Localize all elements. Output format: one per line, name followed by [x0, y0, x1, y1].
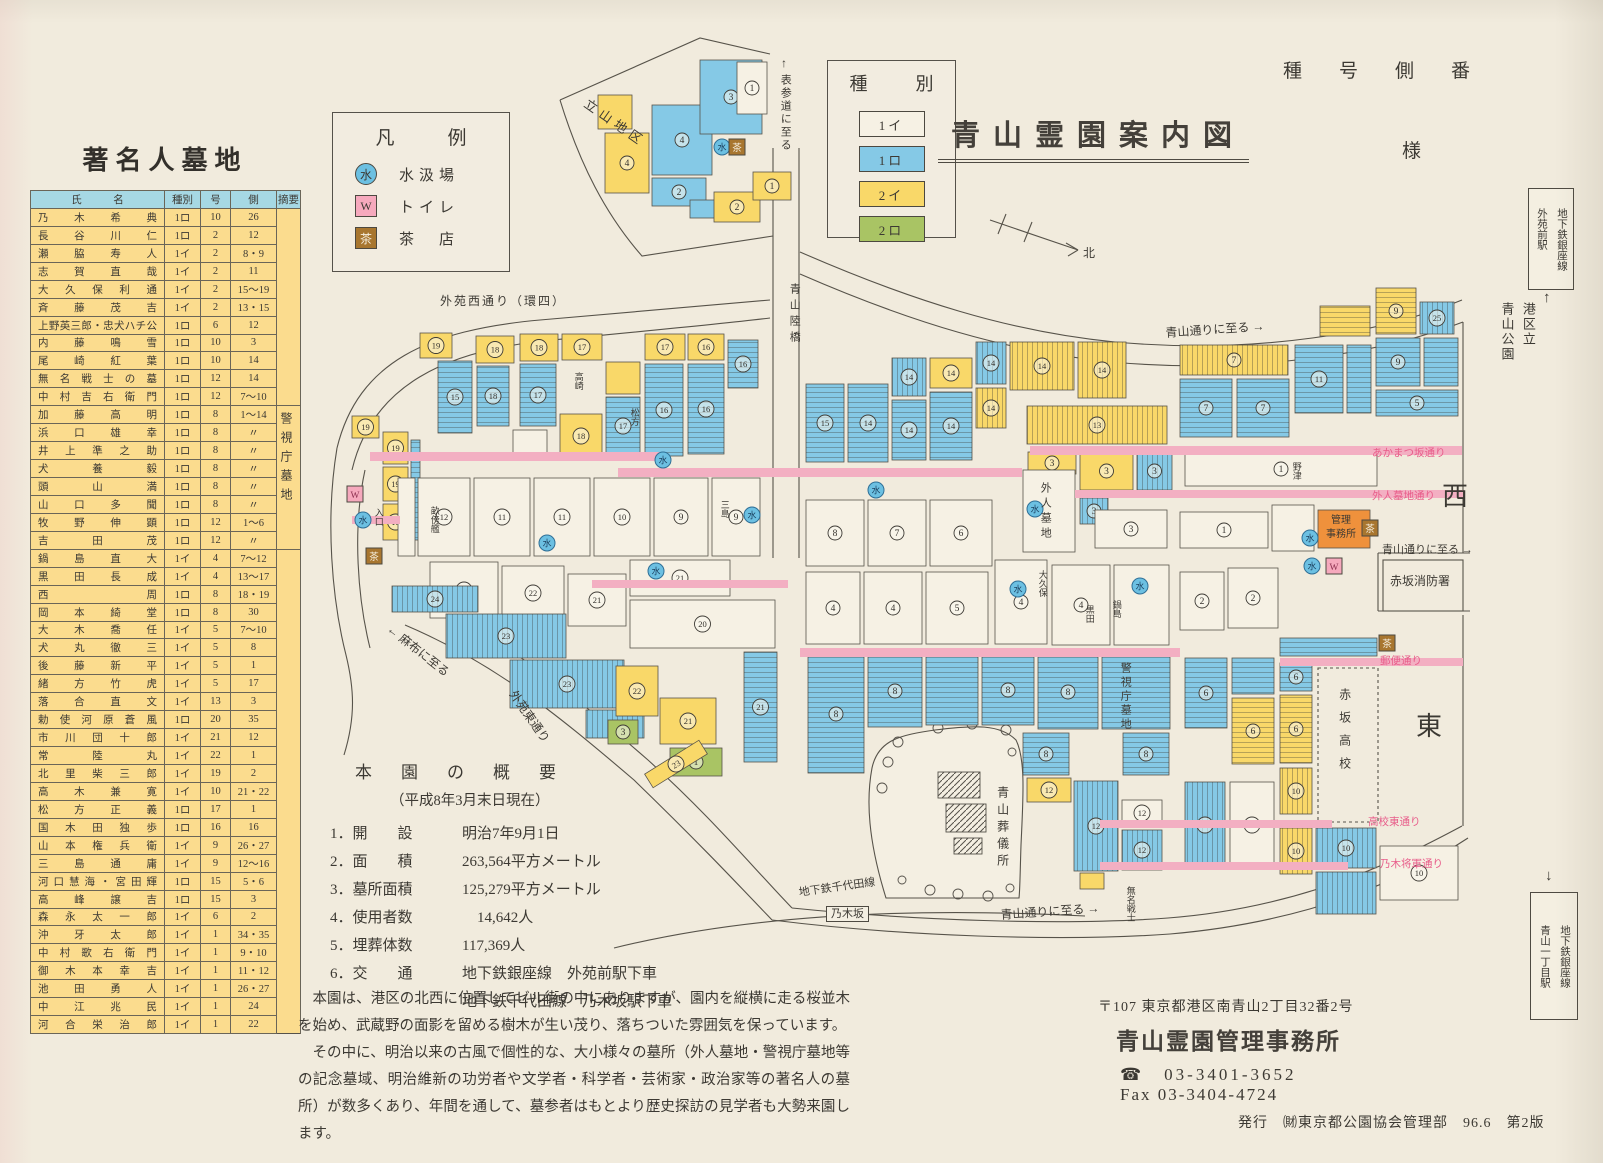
block-number: 4 — [625, 159, 630, 169]
block-number: 10 — [1415, 868, 1424, 878]
block-number: 12 — [1138, 845, 1147, 855]
map-block: 20 — [630, 600, 775, 648]
map-block: 25 — [1420, 302, 1454, 334]
block-number: 10 — [618, 512, 627, 522]
block-number: 1 — [750, 84, 755, 94]
block-number: 6 — [959, 529, 964, 539]
block-number: 9 — [734, 513, 739, 523]
block-number: 19 — [432, 341, 441, 351]
svg-text:水: 水 — [747, 510, 756, 521]
map-block: 14 — [976, 342, 1006, 384]
teahouse-icon: 茶 — [1362, 520, 1378, 536]
map-block: 19 — [352, 416, 379, 438]
block-number: 8 — [1044, 750, 1049, 760]
map-block: 1 — [737, 62, 767, 114]
block-number: 19 — [361, 422, 370, 432]
toilet-icon: W — [347, 486, 363, 502]
block-number: 5 — [955, 604, 960, 614]
water-station-icon: 水 — [1302, 530, 1318, 546]
pink-path — [1100, 820, 1332, 828]
block-number: 3 — [1129, 525, 1134, 535]
map-block — [1424, 338, 1458, 386]
block-number: 19 — [391, 443, 400, 453]
map-block: 6 — [1185, 658, 1227, 728]
pink-path — [370, 452, 663, 461]
map-block: 4 — [1052, 565, 1110, 645]
map-block: 14 — [930, 358, 972, 388]
map-block: 22 — [502, 566, 564, 620]
map-block: 17 — [606, 397, 640, 455]
map-block: 18 — [560, 414, 602, 458]
map-block: 5 — [926, 572, 988, 644]
svg-text:水: 水 — [1307, 561, 1316, 572]
block-number: 18 — [489, 391, 498, 401]
svg-text:水: 水 — [658, 455, 667, 466]
block-number: 14 — [1038, 361, 1047, 371]
block-number: 3 — [729, 93, 734, 103]
block-number: 8 — [833, 529, 838, 539]
map-block: 17 — [562, 334, 602, 360]
water-station-icon: 水 — [1304, 558, 1320, 574]
block-number: 3 — [1050, 459, 1055, 469]
block-number: 3 — [621, 728, 626, 738]
water-station-icon: 水 — [355, 512, 371, 528]
block-number: 17 — [661, 342, 670, 352]
block-number: 22 — [633, 686, 642, 696]
block-number: 16 — [660, 405, 669, 415]
map-block: 3 — [608, 720, 638, 744]
block-number: 1 — [770, 182, 775, 192]
block-number: 18 — [491, 345, 500, 355]
map-block: 7 — [868, 500, 926, 566]
block-number: 16 — [702, 342, 711, 352]
map-block: 24 — [392, 586, 478, 612]
svg-text:水: 水 — [1135, 581, 1144, 592]
block-number: 14 — [947, 421, 956, 431]
block-number: 4 — [680, 136, 685, 146]
map-block: 3 — [1080, 452, 1133, 490]
map-block — [1316, 872, 1376, 914]
map-block: 6 — [1280, 663, 1312, 691]
svg-text:水: 水 — [358, 515, 367, 526]
map-block: 16 — [688, 334, 724, 360]
water-station-icon: 水 — [539, 535, 555, 551]
map-block — [1320, 306, 1370, 336]
map-block: 8 — [806, 500, 864, 566]
funeral-hall-area — [869, 719, 1023, 901]
block-number: 15 — [451, 392, 460, 402]
map-block: 18 — [477, 366, 509, 426]
water-station-icon: 水 — [655, 452, 671, 468]
map-block: 10 — [1380, 846, 1458, 900]
map-block: 2 — [1228, 568, 1278, 628]
block-number: 6 — [1294, 725, 1299, 735]
map-block: 14 — [1078, 342, 1126, 398]
map-block: 4 — [806, 572, 860, 644]
block-number: 6 — [1251, 727, 1256, 737]
scanned-cemetery-map-page: 4432211191919191915181818171817171716161… — [0, 0, 1603, 1163]
water-station-icon: 水 — [1132, 578, 1148, 594]
map-block: 17 — [645, 334, 685, 360]
svg-text:水: 水 — [1013, 584, 1022, 595]
map-block: 10 — [594, 478, 650, 556]
map-block: 16 — [688, 364, 724, 454]
map-block — [1280, 638, 1377, 656]
svg-text:茶: 茶 — [732, 142, 742, 154]
block-number: 1 — [1279, 465, 1284, 475]
svg-text:茶: 茶 — [1382, 638, 1392, 650]
map-block: 6 — [930, 500, 992, 566]
map-block — [1102, 655, 1170, 729]
map-block: 3 — [1137, 452, 1172, 490]
map-block — [398, 478, 415, 556]
map-block: 1 — [1180, 512, 1268, 548]
map-block: 4 — [995, 560, 1047, 644]
block-number: 12 — [1045, 785, 1054, 795]
water-station-icon: 水 — [1010, 581, 1026, 597]
map-block: 16 — [645, 364, 683, 456]
teahouse-icon: 茶 — [1379, 635, 1395, 651]
map-block: 9 — [1376, 288, 1416, 334]
block-number: 9 — [1396, 358, 1401, 368]
block-number: 20 — [698, 619, 707, 629]
block-number: 12 — [1138, 808, 1147, 818]
map-block: 14 — [930, 392, 972, 460]
svg-text:水: 水 — [717, 142, 726, 153]
map-block: 2 — [1180, 572, 1224, 630]
block-number: 8 — [1006, 686, 1011, 696]
map-block: 15 — [806, 384, 844, 462]
map-block: 5 — [1376, 390, 1458, 416]
map-block: 22 — [616, 666, 658, 716]
map-block: 11 — [1295, 345, 1343, 413]
svg-text:W: W — [1330, 563, 1339, 573]
block-number: 18 — [577, 431, 586, 441]
map-block — [598, 95, 632, 129]
map-block: 18 — [476, 336, 514, 363]
toilet-icon: W — [1326, 558, 1342, 574]
svg-text:水: 水 — [542, 538, 551, 549]
block-number: 14 — [864, 418, 873, 428]
block-number: 9 — [679, 513, 684, 523]
pink-path — [1100, 862, 1348, 870]
block-number: 4 — [1079, 601, 1084, 611]
map-block: 21 — [630, 560, 730, 596]
block-number: 12 — [1092, 821, 1101, 831]
block-number: 8 — [834, 710, 839, 720]
map-block — [606, 362, 640, 394]
map-block: 14 — [892, 400, 926, 460]
map-block: 8 — [1023, 733, 1069, 775]
block-number: 4 — [831, 604, 836, 614]
water-station-icon: 水 — [1027, 501, 1043, 517]
svg-text:水: 水 — [871, 485, 880, 496]
block-number: 1 — [1222, 526, 1227, 536]
block-number: 16 — [739, 359, 748, 369]
block-number: 11 — [1315, 374, 1323, 384]
block-number: 14 — [947, 368, 956, 378]
block-number: 7 — [1204, 404, 1209, 414]
map-block: 7 — [1180, 379, 1232, 437]
map-block: 8 — [982, 655, 1034, 725]
block-number: 7 — [1261, 404, 1266, 414]
block-number: 12 — [440, 512, 449, 522]
block-number: 21 — [756, 702, 765, 712]
block-number: 24 — [431, 594, 440, 604]
svg-text:W: W — [351, 491, 360, 501]
block-number: 4 — [1019, 598, 1024, 608]
pink-path — [1280, 658, 1463, 666]
map-block: 23 — [446, 614, 566, 658]
block-number: 2 — [677, 188, 682, 198]
map-block: 13 — [1027, 406, 1167, 444]
pink-path — [592, 580, 788, 588]
map-block: 12 — [1027, 778, 1071, 802]
map-block: 14 — [848, 384, 888, 462]
block-number: 16 — [702, 404, 711, 414]
map-block: 14 — [1010, 342, 1074, 390]
block-number: 14 — [905, 372, 914, 382]
block-number: 6 — [1204, 689, 1209, 699]
pink-path — [1075, 490, 1463, 498]
map-block: 4 — [864, 572, 922, 644]
map-block: 23 — [510, 660, 624, 708]
block-number: 23 — [563, 679, 572, 689]
block-number: 7 — [1232, 356, 1237, 366]
map-block — [1114, 565, 1169, 645]
map-block: 11 — [474, 478, 530, 556]
water-station-icon: 水 — [648, 563, 664, 579]
block-number: 3 — [1152, 467, 1157, 477]
map-block: 14 — [892, 358, 926, 396]
map-block: 4 — [605, 133, 649, 193]
map-block: 1 — [1185, 452, 1377, 486]
cemetery-map: 4432211191919191915181818171817171716161… — [0, 0, 1603, 1163]
map-block — [1232, 658, 1274, 694]
map-block: 8 — [1038, 655, 1098, 729]
svg-text:水: 水 — [1305, 533, 1314, 544]
block-number: 8 — [893, 687, 898, 697]
map-block — [926, 655, 978, 725]
map-block: 8 — [808, 655, 864, 773]
svg-text:水: 水 — [651, 566, 660, 577]
block-number: 3 — [1104, 467, 1109, 477]
block-number: 6 — [1294, 673, 1299, 683]
block-number: 14 — [987, 403, 996, 413]
block-number: 17 — [534, 390, 543, 400]
map-block: 10 — [1280, 768, 1312, 814]
block-number: 14 — [987, 358, 996, 368]
block-number: 7 — [895, 529, 900, 539]
map-block: 17 — [520, 364, 556, 426]
map-block: 7 — [1237, 379, 1289, 437]
block-number: 10 — [1292, 846, 1301, 856]
block-number: 10 — [1342, 843, 1351, 853]
pink-path — [1030, 446, 1462, 455]
water-station-icon: 水 — [744, 507, 760, 523]
block-number: 8 — [1066, 688, 1071, 698]
police-cemetery-note: 警視庁墓地 — [278, 412, 295, 507]
block-number: 13 — [1093, 420, 1102, 430]
block-number: 11 — [558, 512, 566, 522]
teahouse-icon: 茶 — [729, 139, 745, 155]
map-block: 16 — [728, 340, 758, 388]
map-block: 14 — [976, 388, 1006, 428]
map-block — [1080, 873, 1104, 889]
pink-path — [618, 468, 1022, 477]
north-mark — [990, 214, 1078, 256]
svg-text:茶: 茶 — [369, 551, 379, 563]
block-number: 22 — [529, 588, 538, 598]
map-block: 6 — [1280, 695, 1312, 763]
block-number: 21 — [684, 716, 693, 726]
map-block: 8 — [868, 655, 922, 727]
block-number: 21 — [593, 595, 602, 605]
block-number: 17 — [619, 421, 628, 431]
block-number: 11 — [498, 512, 506, 522]
block-number: 2 — [1200, 597, 1205, 607]
map-block: 21 — [660, 698, 716, 744]
map-block — [1347, 345, 1371, 413]
block-number: 2 — [1251, 594, 1256, 604]
water-station-icon: 水 — [714, 139, 730, 155]
map-block: 15 — [438, 361, 472, 433]
block-number: 5 — [1415, 399, 1420, 409]
block-number: 9 — [1394, 307, 1399, 317]
block-number: 23 — [502, 631, 511, 641]
block-number: 14 — [1098, 365, 1107, 375]
water-station-icon: 水 — [868, 482, 884, 498]
block-number: 8 — [1144, 750, 1149, 760]
map-block: 6 — [1232, 698, 1274, 764]
map-block: 9 — [654, 478, 708, 556]
map-block: 8 — [1123, 733, 1169, 775]
block-number: 2 — [735, 203, 740, 213]
block-number: 17 — [578, 342, 587, 352]
svg-text:水: 水 — [1030, 504, 1039, 515]
pink-path — [800, 648, 1180, 657]
svg-text:茶: 茶 — [1365, 523, 1375, 535]
map-block: 9 — [1376, 338, 1420, 386]
block-number: 4 — [891, 604, 896, 614]
map-block: 12 — [418, 478, 470, 556]
block-number: 15 — [821, 418, 830, 428]
map-block: 19 — [420, 333, 452, 358]
map-block: 1 — [753, 172, 791, 200]
map-block: 18 — [520, 334, 558, 361]
block-number: 14 — [905, 425, 914, 435]
block-number: 25 — [1433, 313, 1442, 323]
map-block: 7 — [1180, 345, 1288, 375]
map-block: 3 — [1095, 510, 1167, 548]
teahouse-icon: 茶 — [366, 548, 382, 564]
block-number: 18 — [535, 343, 544, 353]
block-number: 10 — [1292, 786, 1301, 796]
map-block: 21 — [744, 652, 777, 762]
